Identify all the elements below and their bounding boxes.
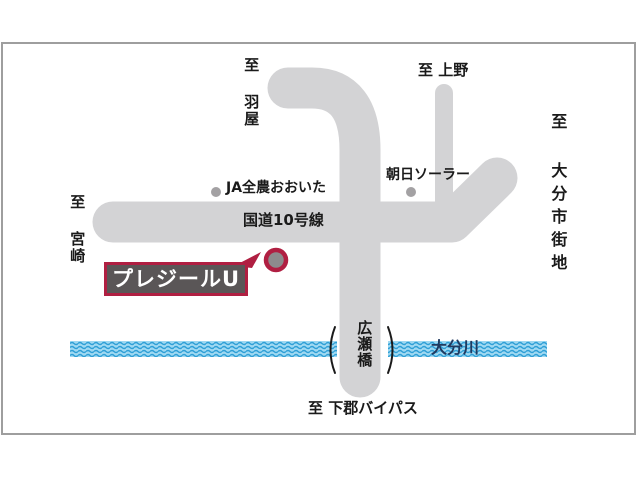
hirose-bridge-label: 広瀬橋 bbox=[355, 320, 372, 368]
poi-asahi-solar-label: 朝日ソーラー bbox=[386, 167, 470, 183]
dest-oita-city-label: 至 大分市街地 bbox=[548, 113, 566, 277]
dest-haneya-label: 至 羽屋 bbox=[242, 57, 259, 128]
oita-river-label: 大分川 bbox=[431, 339, 479, 357]
dest-shimogori-bypass-label: 至 下郡バイパス bbox=[308, 400, 418, 417]
river-left-waves bbox=[70, 341, 337, 357]
dest-ueno-label: 至 上野 bbox=[418, 62, 468, 79]
asahi-solar-dot bbox=[406, 187, 416, 197]
ja-zennoh-oita-dot bbox=[211, 187, 221, 197]
dealer-location-dot bbox=[266, 250, 286, 270]
dest-miyazaki-label: 至 宮崎 bbox=[68, 194, 85, 265]
access-map: 至 羽屋 至 上野 至 大分市街地 至 宮崎 至 下郡バイパス JA全農おおいた… bbox=[0, 0, 640, 480]
dealer-label-box: プレジールU bbox=[104, 262, 248, 296]
roads bbox=[113, 88, 497, 377]
dealer-name: プレジールU bbox=[112, 269, 240, 290]
poi-ja-zennoh-oita-label: JA全農おおいた bbox=[226, 180, 326, 196]
route10-label: 国道10号線 bbox=[243, 212, 324, 229]
